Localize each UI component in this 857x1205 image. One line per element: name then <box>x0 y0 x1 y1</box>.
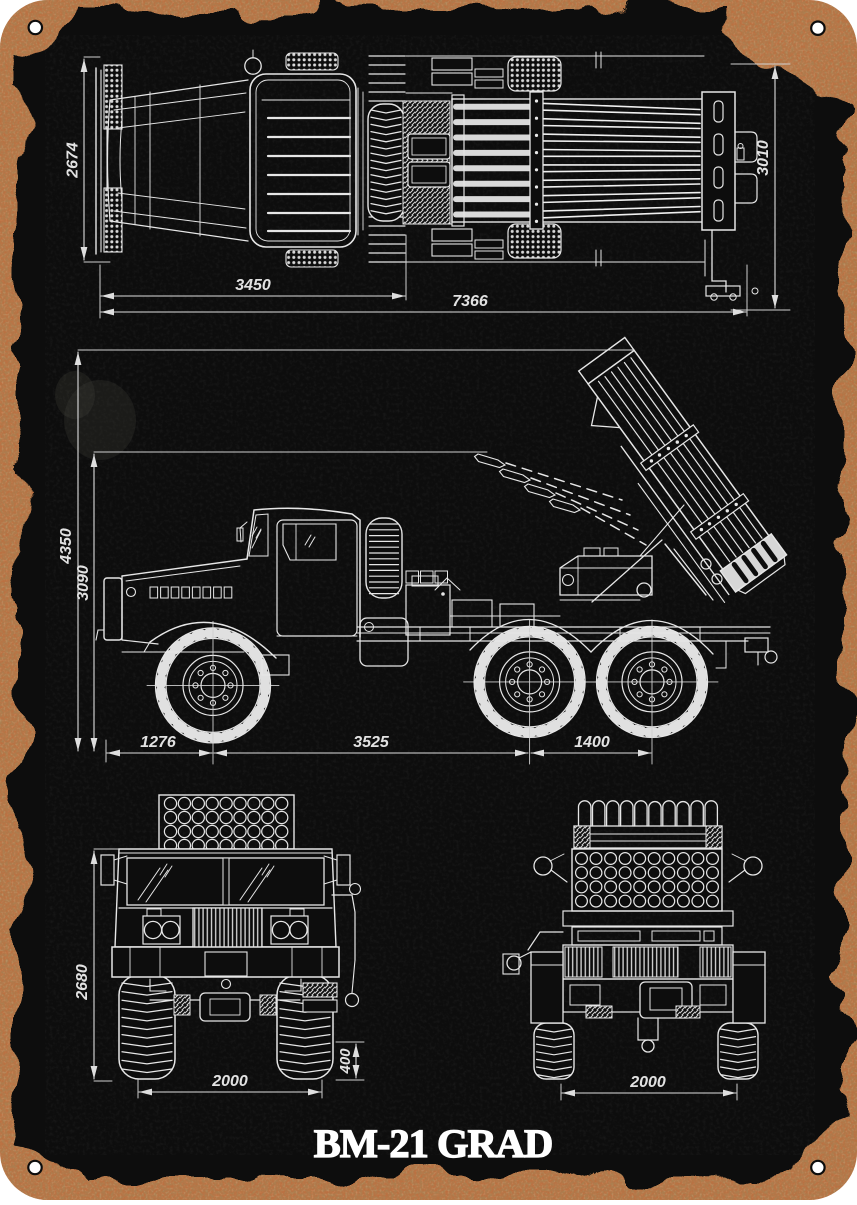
svg-text:3450: 3450 <box>235 277 271 294</box>
svg-text:2680: 2680 <box>74 964 91 1001</box>
svg-text:3525: 3525 <box>353 734 390 751</box>
svg-text:7366: 7366 <box>452 293 488 310</box>
svg-text:2674: 2674 <box>65 142 82 179</box>
svg-text:2000: 2000 <box>211 1073 248 1090</box>
svg-text:1276: 1276 <box>140 734 176 751</box>
svg-text:3090: 3090 <box>75 565 92 601</box>
svg-text:1400: 1400 <box>574 734 610 751</box>
svg-text:BM-21 GRAD: BM-21 GRAD <box>314 1121 553 1166</box>
svg-text:400: 400 <box>337 1048 354 1075</box>
svg-text:4350: 4350 <box>58 528 75 565</box>
svg-text:2000: 2000 <box>629 1074 666 1091</box>
